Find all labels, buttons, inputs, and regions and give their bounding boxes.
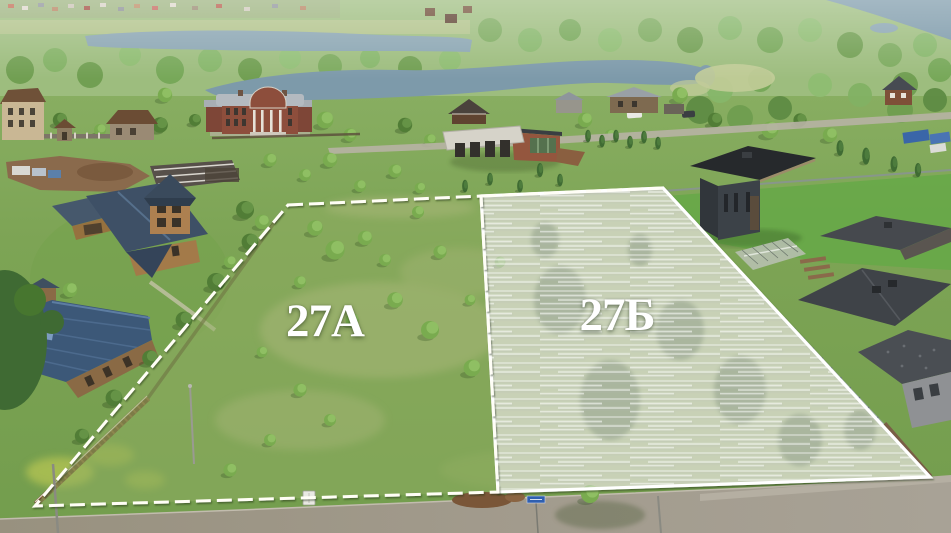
aerial-photo: 27А 27Б — [0, 0, 951, 533]
plot-label-27a: 27А — [286, 294, 364, 348]
scene-svg — [0, 0, 951, 533]
beige-mansion — [0, 88, 46, 140]
plot-label-27b: 27Б — [579, 288, 654, 342]
atmospheric-haze — [0, 0, 951, 80]
brick-mansion — [204, 87, 312, 137]
